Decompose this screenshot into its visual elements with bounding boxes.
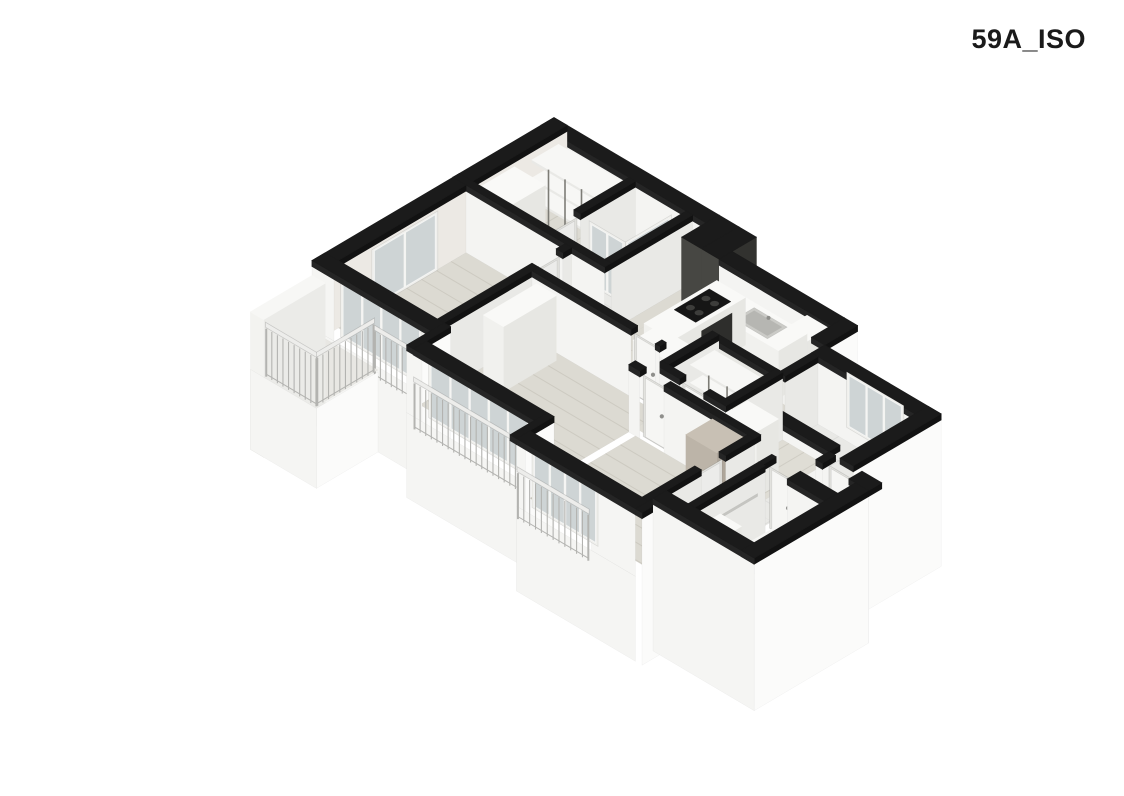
page: 59A_ISO: [0, 0, 1124, 796]
floorplan-3d-render: [0, 0, 1124, 796]
drawing-title: 59A_ISO: [971, 24, 1086, 55]
